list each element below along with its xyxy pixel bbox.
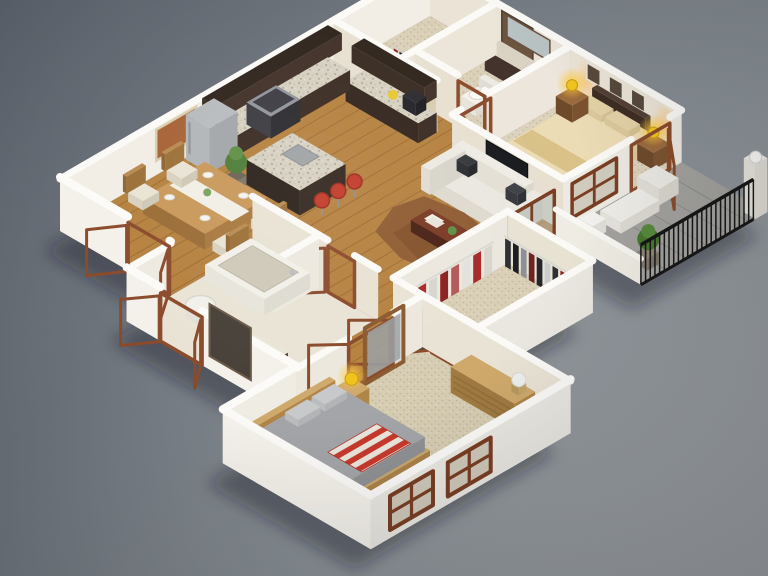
vase-dining: [203, 188, 211, 196]
coffee-table-plant: [448, 226, 457, 235]
lamp-bedroom1-a: [567, 80, 578, 91]
fridge-handle: [188, 122, 190, 155]
flowers-kitchen: [388, 90, 398, 100]
pillar-cap-light: [750, 151, 762, 163]
plate-4: [200, 215, 210, 221]
stool-1: [347, 174, 362, 189]
plate-2: [165, 195, 175, 201]
lamp-bedroom2-a: [345, 372, 358, 385]
stool-2: [331, 183, 346, 198]
plant-dining-leaves-b: [229, 146, 243, 160]
plate-3: [239, 193, 249, 199]
dresser-flowers: [512, 373, 526, 387]
bathtub-faucet: [289, 269, 295, 275]
plate-1: [203, 172, 213, 178]
floorplan-image: [0, 0, 768, 576]
stool-3: [314, 193, 329, 208]
floorplan-render: [0, 0, 768, 576]
